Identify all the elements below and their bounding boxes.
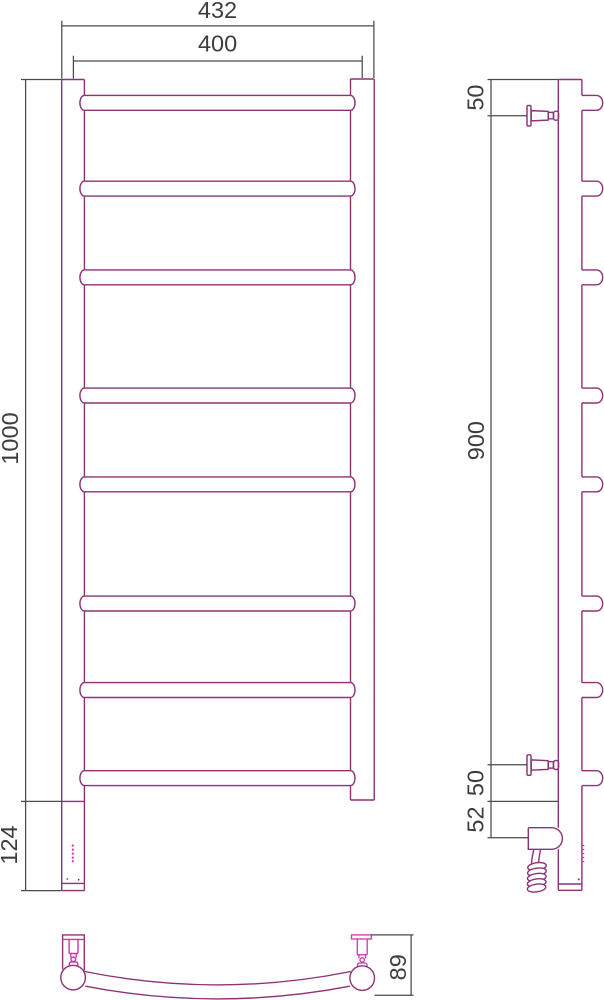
svg-text:124: 124 bbox=[0, 825, 22, 864]
svg-text:400: 400 bbox=[198, 30, 237, 56]
svg-text:1000: 1000 bbox=[0, 412, 23, 464]
svg-text:432: 432 bbox=[198, 0, 237, 23]
svg-text:52: 52 bbox=[463, 806, 489, 832]
svg-text:50: 50 bbox=[463, 85, 489, 111]
svg-text:900: 900 bbox=[463, 421, 489, 460]
svg-text:89: 89 bbox=[385, 954, 411, 980]
svg-text:50: 50 bbox=[463, 770, 489, 796]
